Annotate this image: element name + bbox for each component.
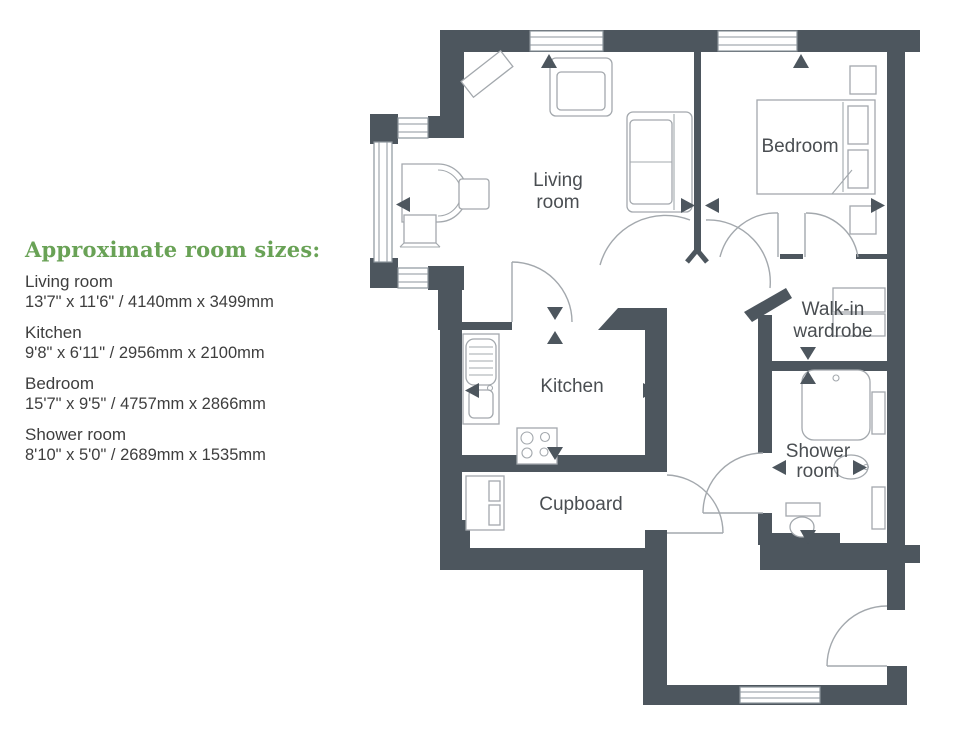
label-bedroom: Bedroom bbox=[761, 136, 838, 157]
wall-hall-left bbox=[643, 562, 667, 692]
label-shower-line2: room bbox=[796, 461, 839, 482]
reading-chair bbox=[400, 164, 489, 247]
wall-kitchen-bottom bbox=[462, 455, 667, 472]
wall-bedroom-bottom-b bbox=[856, 254, 887, 259]
label-walkin-line1: Walk-in bbox=[802, 299, 865, 320]
sofa bbox=[627, 112, 692, 212]
wall-kitchen-top-thick bbox=[598, 308, 667, 330]
window-bedroom-top bbox=[718, 31, 797, 51]
arrow-up-kitchen-top bbox=[547, 331, 563, 344]
wall-divider-ticks bbox=[687, 250, 707, 262]
armchair bbox=[550, 58, 612, 116]
wall-cupboard-bottom bbox=[440, 548, 667, 570]
tv-unit bbox=[461, 51, 513, 98]
wall-bedroom-bottom-a bbox=[780, 254, 803, 259]
arrow-right-bedroom-wall bbox=[871, 198, 885, 213]
entrance-door-arc bbox=[827, 606, 887, 666]
wall-cupboard-right bbox=[645, 530, 667, 570]
cupboard-door-arc bbox=[667, 475, 723, 533]
arrow-down-kitchen-top bbox=[547, 307, 563, 320]
floorplan: Living room Bedroom Kitchen Cupboard Wal… bbox=[0, 0, 980, 735]
kitchen-door-arc bbox=[512, 262, 572, 322]
wall-top bbox=[458, 30, 920, 52]
hob bbox=[517, 428, 557, 464]
nightstand-top bbox=[850, 66, 876, 94]
wall-left-kitchen bbox=[440, 322, 462, 535]
label-living-room-line2: room bbox=[536, 192, 579, 213]
arrow-up-bedroom-window bbox=[793, 54, 809, 68]
arrow-left-at-divider bbox=[705, 198, 719, 213]
wall-bottom-right-block bbox=[887, 666, 907, 705]
wall-right bbox=[887, 52, 905, 610]
arrow-down-wardrobe-wall bbox=[800, 347, 816, 360]
wall-shower-bottom-thick bbox=[760, 543, 905, 570]
window-bay-lower bbox=[398, 268, 428, 288]
page: { "legend": { "title": "Approximate room… bbox=[0, 0, 980, 735]
radiator-upper bbox=[872, 392, 885, 434]
wall-right-bump bbox=[903, 545, 920, 563]
window-bay-upper bbox=[398, 118, 428, 138]
wall-kitchen-top-thin bbox=[438, 322, 512, 330]
label-walkin-line2: wardrobe bbox=[792, 321, 872, 342]
window-living-top bbox=[530, 31, 603, 51]
wall-bay-upper bbox=[428, 116, 464, 138]
window-hall-bottom bbox=[740, 687, 820, 703]
wall-shower-left-upper bbox=[758, 315, 772, 453]
kitchen-sink bbox=[463, 334, 499, 424]
shower-door-arc bbox=[703, 453, 763, 513]
wall-left-upper bbox=[438, 266, 462, 330]
washing-machine bbox=[466, 476, 504, 530]
wall-top-left-stub bbox=[440, 30, 464, 118]
living-hall-door-arc bbox=[600, 215, 690, 265]
radiator-lower bbox=[872, 487, 885, 529]
bedroom-hall-door-arc bbox=[706, 220, 770, 288]
wall-living-bedroom-divider bbox=[694, 52, 701, 252]
label-kitchen: Kitchen bbox=[540, 376, 603, 397]
label-shower-line1: Shower bbox=[786, 441, 851, 462]
wall-bay-corner-a bbox=[370, 114, 398, 144]
window-bay-left bbox=[374, 142, 392, 262]
arrow-left-shower bbox=[772, 460, 786, 475]
label-living-room-line1: Living bbox=[533, 170, 583, 191]
label-cupboard: Cupboard bbox=[539, 494, 622, 515]
